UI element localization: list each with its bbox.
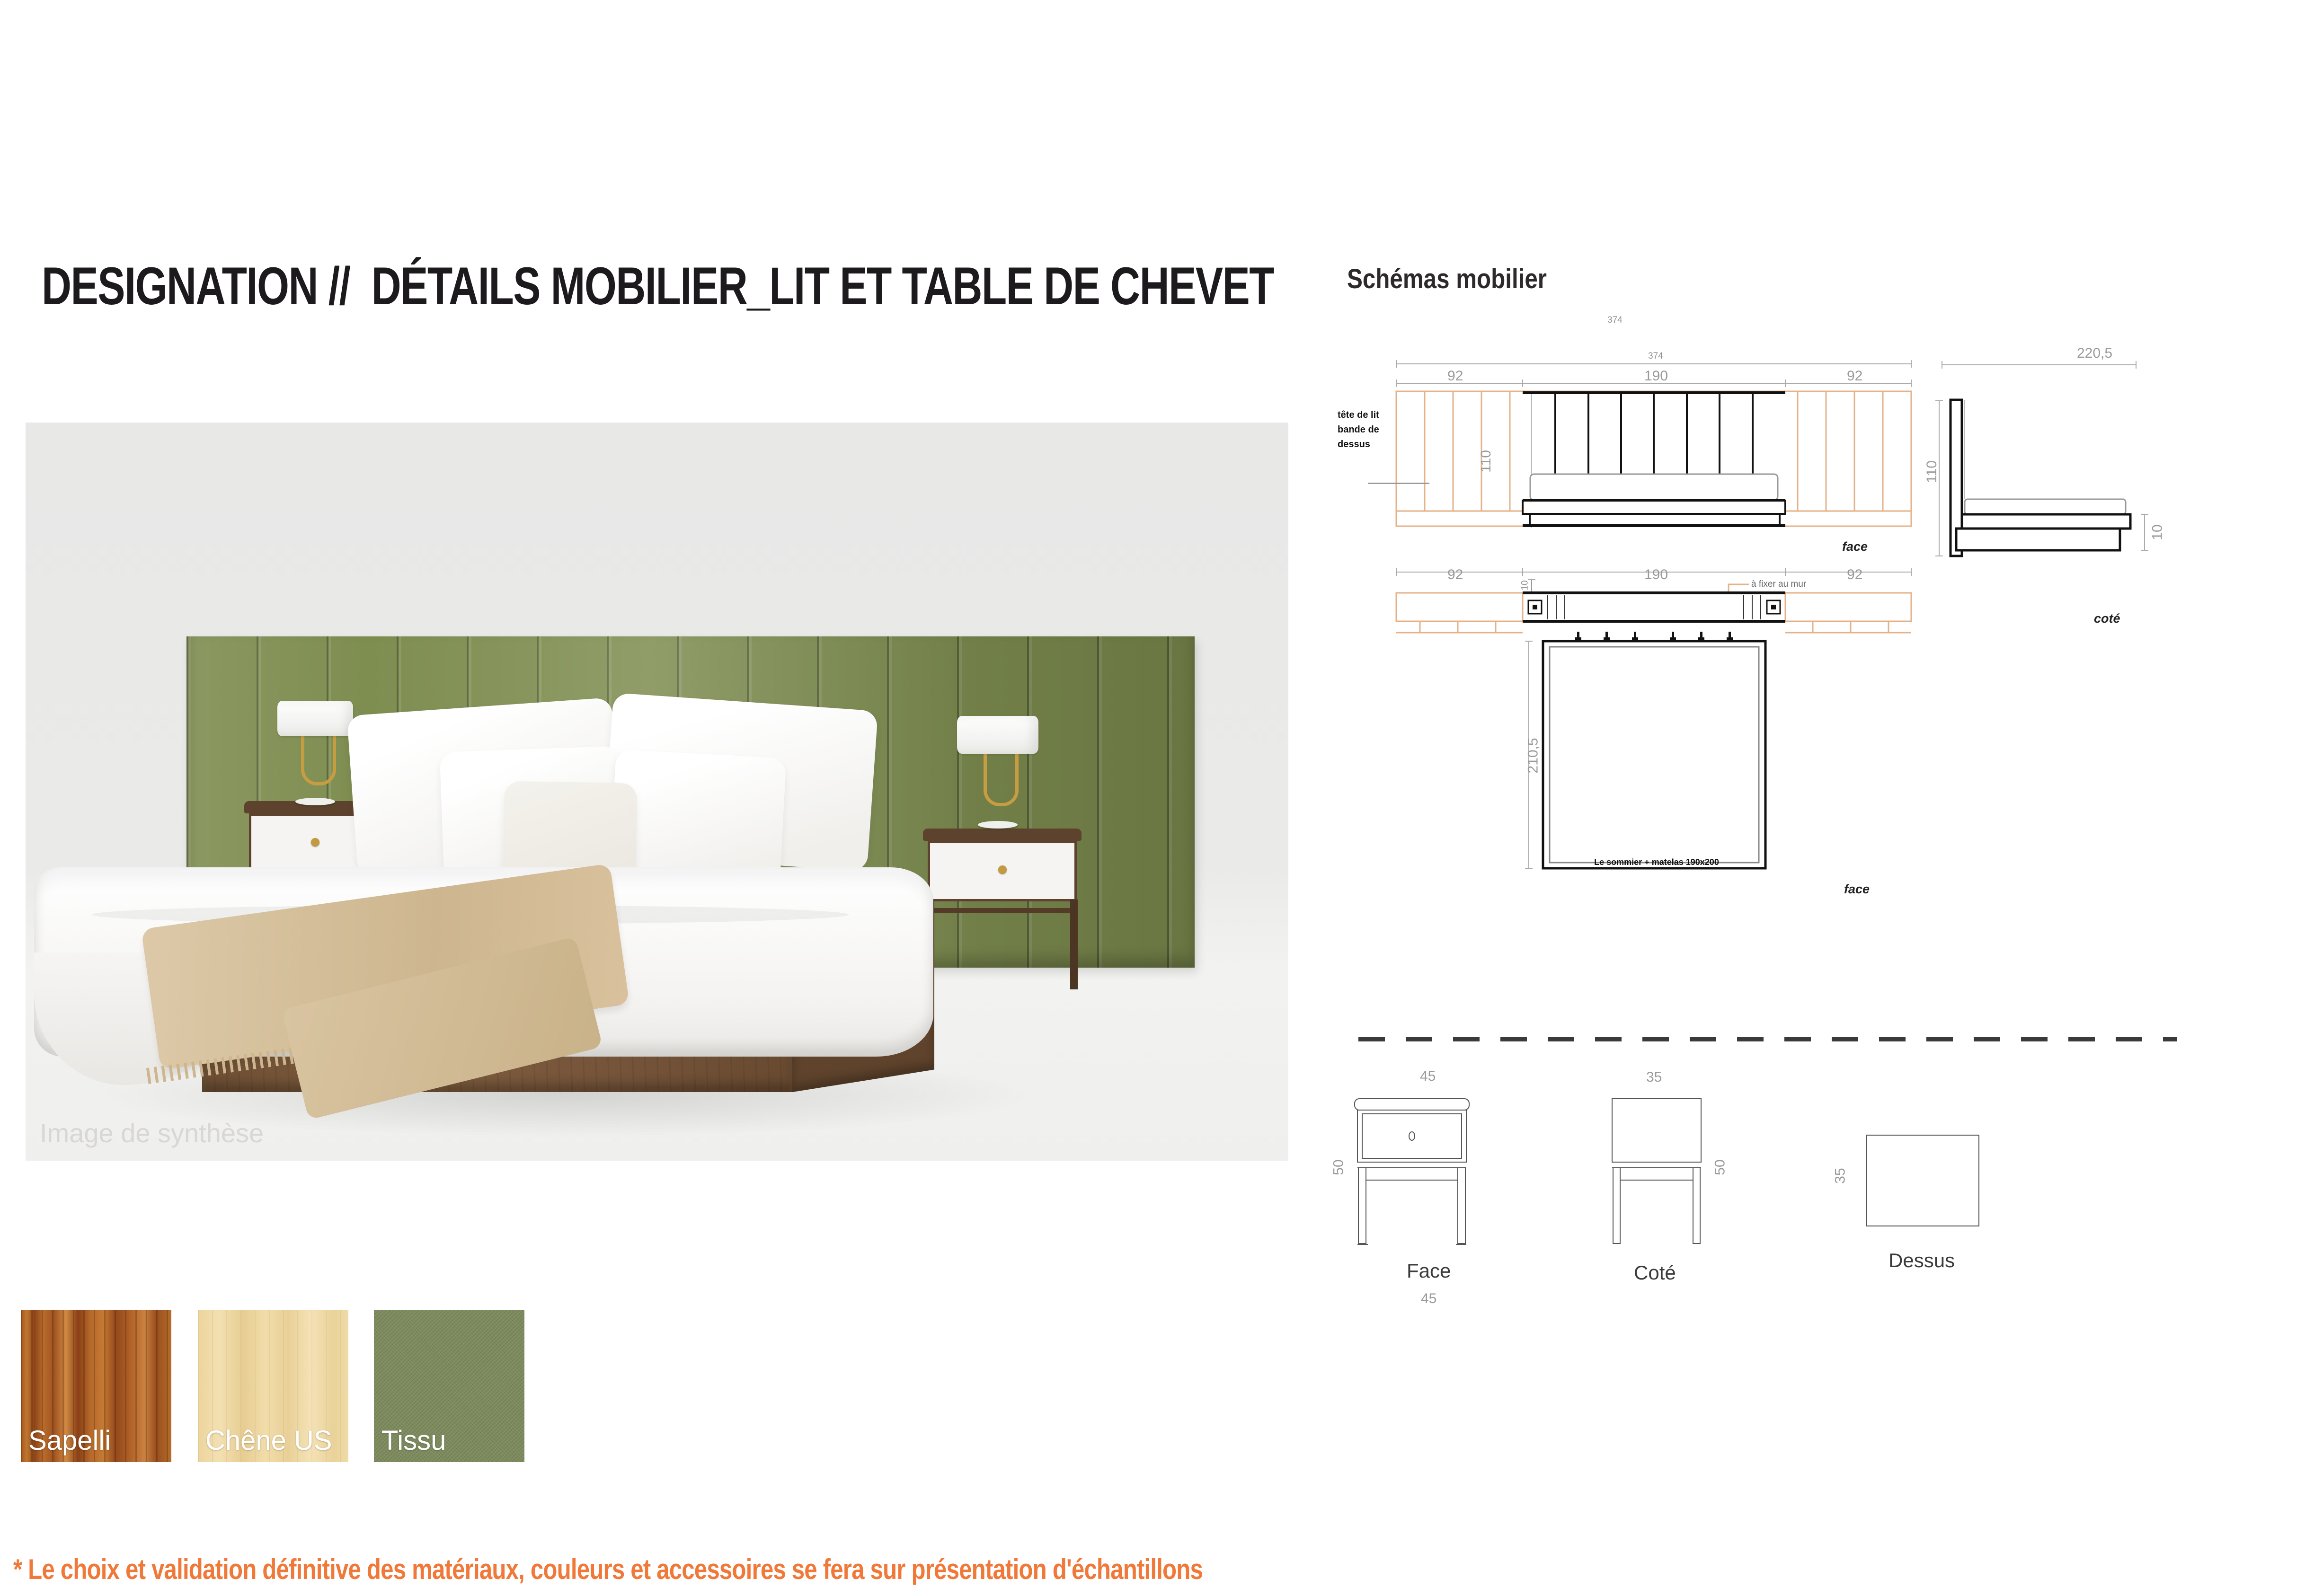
dim-side-height: 110 bbox=[1924, 460, 1940, 483]
front-caption: face bbox=[1842, 539, 1868, 554]
nightstand-leg bbox=[1070, 899, 1078, 989]
plan-caption: face bbox=[1844, 882, 1870, 897]
dim-front-seg-right: 92 bbox=[1847, 368, 1862, 384]
plan-inner-note: Le sommier + matelas 190x200 bbox=[1557, 857, 1756, 867]
lamp-shade bbox=[277, 701, 353, 736]
nightstand-rail bbox=[930, 908, 1075, 913]
dim-front-height: 110 bbox=[1478, 450, 1494, 473]
table-lamp-left bbox=[277, 701, 353, 753]
dim-front-seg-center: 190 bbox=[1644, 368, 1668, 384]
front-annotation: tête de lit bande de dessus bbox=[1338, 408, 1418, 452]
ns-caption-side: Coté bbox=[1634, 1261, 1676, 1284]
ns-dim-depth-top: 35 bbox=[1646, 1069, 1662, 1085]
ns-dim-top-depth: 35 bbox=[1833, 1168, 1849, 1183]
nightstand-top bbox=[923, 829, 1082, 841]
footnote: * Le choix et validation définitive des … bbox=[13, 1553, 1464, 1586]
bed-plan bbox=[1543, 641, 1765, 868]
material-swatch-chene-us: Chêne US bbox=[198, 1310, 348, 1462]
bed-side bbox=[1951, 400, 2130, 556]
dim-front-seg-left: 92 bbox=[1447, 368, 1463, 384]
headboard-front bbox=[1523, 393, 1785, 474]
schematics-heading: Schémas mobilier bbox=[1347, 263, 1582, 295]
nightstand-knob bbox=[998, 865, 1007, 874]
bed-plan-drawing bbox=[1392, 565, 1917, 897]
material-swatch-sapelli: Sapelli bbox=[21, 1310, 171, 1462]
material-swatch-tissu: Tissu bbox=[374, 1310, 524, 1462]
photo-caption: Image de synthèse bbox=[40, 1118, 264, 1148]
fixing-cleats bbox=[1575, 632, 1733, 641]
nightstand-right bbox=[923, 829, 1082, 989]
bed-side-drawing bbox=[1933, 357, 2161, 580]
render-image: Image de synthèse bbox=[26, 423, 1288, 1161]
dim-plan-lip: 10 bbox=[1520, 580, 1531, 590]
dim-front-total-2: 374 bbox=[1648, 351, 1663, 362]
nightstand-top-drawing bbox=[1865, 1133, 1981, 1228]
material-label: Sapelli bbox=[28, 1425, 111, 1456]
dashed-separator bbox=[1358, 1037, 2177, 1041]
nightstand-front-drawing bbox=[1353, 1092, 1471, 1248]
ns-caption-top: Dessus bbox=[1889, 1249, 1955, 1272]
nightstand-knob bbox=[311, 838, 319, 846]
ns-dim-height-left: 50 bbox=[1331, 1159, 1347, 1175]
dimension-lines bbox=[1396, 568, 1911, 868]
page-title-text: DESIGNATION // DÉTAILS MOBILIER_LIT ET T… bbox=[42, 256, 1274, 317]
bed-front-drawing bbox=[1392, 357, 1917, 556]
headboard-plan bbox=[1523, 593, 1785, 641]
dim-plan-depth: 210,5 bbox=[1525, 738, 1542, 773]
lamp-base bbox=[295, 798, 335, 805]
dim-plan-seg-center: 190 bbox=[1644, 567, 1668, 583]
side-caption: coté bbox=[2094, 611, 2120, 626]
material-label: Chêne US bbox=[205, 1425, 332, 1456]
bed-front bbox=[1523, 474, 1785, 526]
annotation-leader bbox=[1368, 483, 1429, 484]
ns-caption-front: Face bbox=[1407, 1260, 1451, 1282]
dim-plan-seg-left: 92 bbox=[1447, 567, 1463, 583]
ns-dim-width-top: 45 bbox=[1420, 1068, 1436, 1085]
ns-dim-height-right: 50 bbox=[1712, 1159, 1729, 1175]
dim-front-total: 374 bbox=[1607, 315, 1623, 326]
table-lamp-right bbox=[957, 716, 1038, 772]
dim-plan-seg-right: 92 bbox=[1847, 567, 1862, 583]
ns-dim-width-bottom: 45 bbox=[1421, 1291, 1436, 1307]
lamp-shade bbox=[957, 716, 1038, 754]
dim-side-base: 10 bbox=[2150, 524, 2166, 540]
material-label: Tissu bbox=[381, 1425, 446, 1456]
lamp-base bbox=[978, 821, 1018, 829]
plan-wall-note: à fixer au mur bbox=[1751, 579, 1806, 590]
dim-side-length: 220,5 bbox=[2077, 345, 2112, 362]
nightstand-side-drawing bbox=[1609, 1092, 1704, 1248]
